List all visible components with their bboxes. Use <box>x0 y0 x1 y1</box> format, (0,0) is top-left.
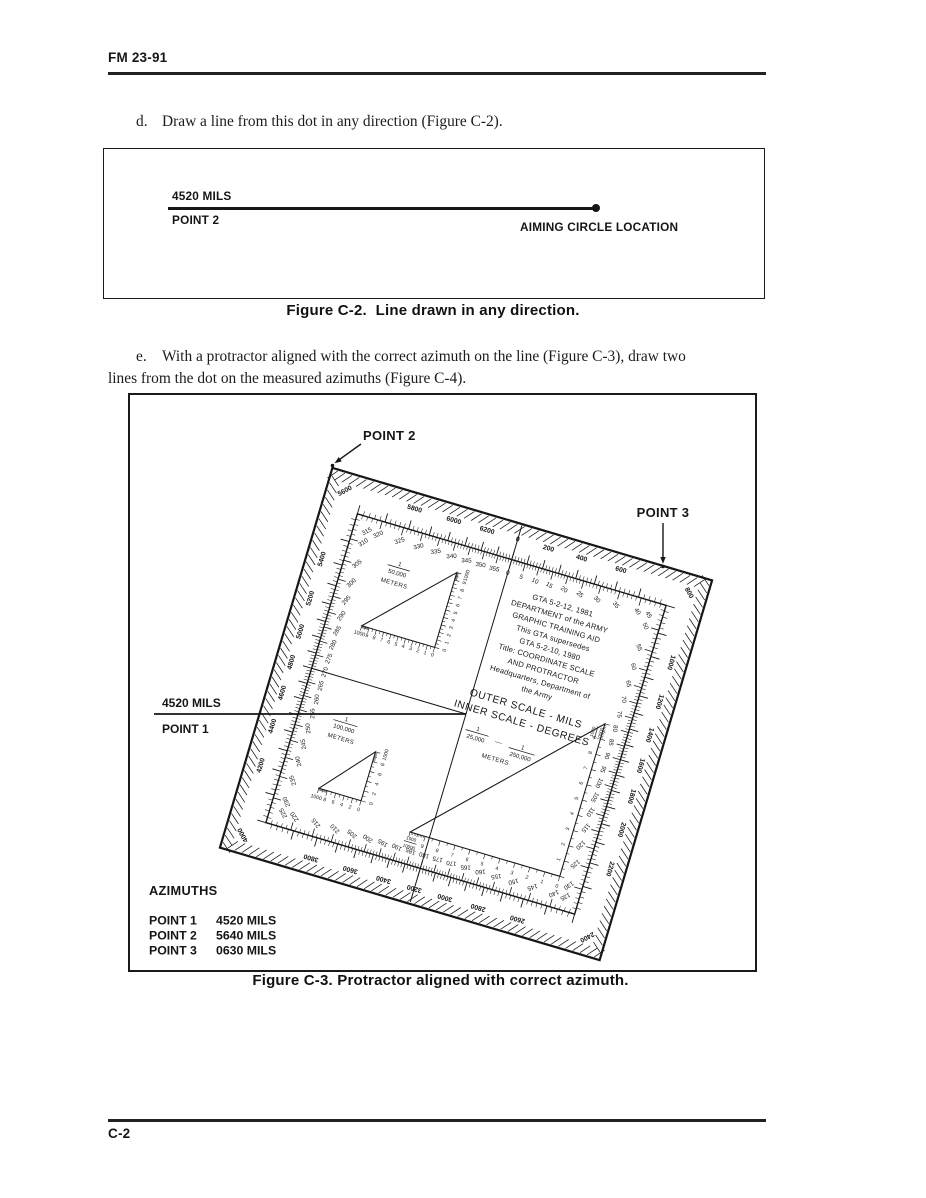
svg-text:75: 75 <box>615 711 622 719</box>
figure-c2-caption: Figure C-2. Line drawn in any direction. <box>103 302 763 319</box>
svg-text:POINT 3: POINT 3 <box>149 944 197 958</box>
manual-page: FM 23-91 d.Draw a line from this dot in … <box>0 0 926 1198</box>
figure-c2-azimuth-label: 4520 MILS <box>172 189 232 203</box>
paragraph-d-label: d. <box>136 111 162 132</box>
figure-c2-box: 4520 MILS POINT 2 AIMING CIRCLE LOCATION <box>103 148 765 299</box>
figure-c3-box: 0200400600800100012001400160018002000220… <box>128 393 757 972</box>
svg-text:POINT 3: POINT 3 <box>637 505 690 520</box>
svg-text:POINT 1: POINT 1 <box>149 914 197 928</box>
svg-text:POINT 1: POINT 1 <box>162 722 209 736</box>
svg-text:165: 165 <box>460 863 471 870</box>
svg-text:170: 170 <box>445 859 457 867</box>
svg-text:POINT 2: POINT 2 <box>149 929 197 943</box>
protractor-diagram: 0200400600800100012001400160018002000220… <box>130 395 755 970</box>
figure-c3-caption: Figure C-3. Protractor aligned with corr… <box>128 972 753 989</box>
figure-c2-point-label: POINT 2 <box>172 213 219 227</box>
svg-text:340: 340 <box>446 553 457 561</box>
figure-c2-azimuth-line <box>168 207 596 210</box>
svg-text:4520 MILS: 4520 MILS <box>162 696 221 710</box>
svg-text:80: 80 <box>611 725 619 733</box>
page-footer-code: C-2 <box>108 1126 130 1141</box>
svg-text:POINT 2: POINT 2 <box>363 428 416 443</box>
footer-rule <box>108 1119 766 1122</box>
svg-text:AZIMUTHS: AZIMUTHS <box>149 883 218 898</box>
paragraph-e-line2: lines from the dot on the measured azimu… <box>108 368 466 389</box>
figure-c2-location-label: AIMING CIRCLE LOCATION <box>520 220 678 234</box>
svg-text:70: 70 <box>620 696 627 704</box>
paragraph-d-text: Draw a line from this dot in any directi… <box>162 113 503 130</box>
svg-text:250: 250 <box>305 723 313 734</box>
svg-text:260: 260 <box>313 693 321 705</box>
svg-text:160: 160 <box>475 868 486 876</box>
page-header-code: FM 23-91 <box>108 50 167 65</box>
svg-text:350: 350 <box>475 561 487 569</box>
aiming-circle-dot <box>592 204 600 212</box>
paragraph-e-text-line1: With a protractor aligned with the corre… <box>162 348 686 365</box>
header-rule <box>108 72 766 75</box>
svg-text:345: 345 <box>461 557 472 564</box>
paragraph-e-label: e. <box>136 346 162 367</box>
svg-text:4520 MILS: 4520 MILS <box>216 914 276 928</box>
paragraph-d: d.Draw a line from this dot in any direc… <box>136 111 503 132</box>
svg-text:5640 MILS: 5640 MILS <box>216 929 276 943</box>
paragraph-e-line1: e.With a protractor aligned with the cor… <box>136 346 686 367</box>
svg-text:0630 MILS: 0630 MILS <box>216 944 276 958</box>
